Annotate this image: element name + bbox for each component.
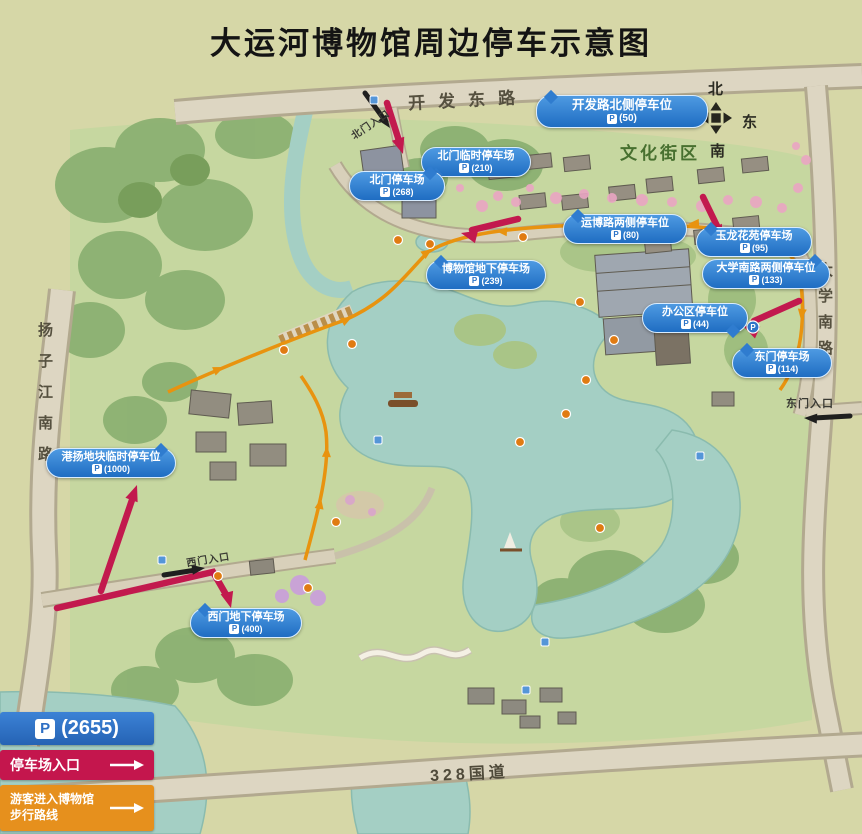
parking-circle-marker: P (747, 321, 759, 333)
parking-icon: P (681, 319, 691, 329)
parking-capacity: (50) (619, 113, 637, 125)
parking-icon: P (92, 464, 102, 474)
legend: P (2655) 停车场入口 游客进入博物馆 步行路线 (0, 712, 154, 834)
compass-north-label: 北 (708, 78, 723, 99)
parking-icon: P (611, 230, 621, 240)
parking-capacity: (400) (241, 624, 262, 634)
parking-icon: P (469, 276, 479, 286)
parking-label-gangyang-block: 港扬地块临时停车位 P(1000) (46, 448, 176, 478)
parking-icon: P (766, 364, 776, 374)
parking-name: 西门地下停车场 (195, 611, 297, 624)
parking-capacity: (114) (778, 364, 799, 374)
parking-icon: P (229, 624, 239, 634)
parking-name: 港扬地块临时停车位 (51, 451, 171, 464)
west-gate-pavilion (249, 559, 274, 575)
parking-label-north-gate: 北门停车场 P(268) (349, 171, 445, 201)
parking-name: 北门停车场 (354, 174, 440, 187)
legend-total-capacity: P (2655) (0, 712, 154, 745)
parking-capacity: (133) (761, 275, 782, 285)
parking-circle-marker-label: P (750, 323, 756, 332)
parking-name: 东门停车场 (737, 351, 827, 364)
parking-icon: P (749, 275, 759, 285)
compass-south-label: 南 (710, 140, 725, 161)
parking-label-office-area: 办公区停车位 P(44) (642, 303, 748, 333)
legend-walk-label-line1: 游客进入博物馆 (10, 792, 94, 806)
parking-label-yunbo-road: 运博路两侧停车位 P(80) (563, 214, 687, 244)
parking-capacity: (268) (392, 187, 413, 197)
parking-label-daxue-south-side: 大学南路两侧停车位 P(133) (702, 259, 830, 289)
parking-label-museum-underground: 博物馆地下停车场 P(239) (426, 260, 546, 290)
parking-capacity: (239) (481, 276, 502, 286)
parking-icon: P (380, 187, 390, 197)
parking-icon: P (740, 243, 750, 253)
parking-icon: P (607, 114, 617, 124)
parking-name: 办公区停车位 (647, 306, 743, 319)
road-label-g328: 328国道 (429, 758, 509, 786)
parking-name: 玉龙花苑停车场 (701, 230, 807, 243)
legend-walk-route: 游客进入博物馆 步行路线 (0, 785, 154, 831)
legend-entrance-label: 停车场入口 (10, 755, 80, 775)
parking-capacity: (44) (693, 319, 709, 329)
parking-capacity: (1000) (104, 464, 130, 474)
parking-name: 大学南路两侧停车位 (707, 262, 825, 275)
parking-name: 北门临时停车场 (426, 150, 526, 163)
parking-capacity: (95) (752, 243, 768, 253)
page-title: 大运河博物馆周边停车示意图 (0, 18, 862, 63)
parking-capacity: (210) (471, 163, 492, 173)
legend-total-value: (2655) (61, 717, 119, 740)
parking-name: 开发路北侧停车位 (541, 98, 703, 113)
parking-capacity: (80) (623, 230, 639, 240)
parking-map-page: P 大运河博物馆周边停车示意图 开发东路 扬子江南路 大学南路 328国道 文化… (0, 0, 862, 834)
parking-label-west-gate-underground: 西门地下停车场 P(400) (190, 608, 302, 638)
compass-east-label: 东 (742, 111, 757, 132)
parking-name: 博物馆地下停车场 (431, 263, 541, 276)
parking-label-kaifa-north-side: 开发路北侧停车位 P(50) (536, 95, 708, 128)
parking-label-yulong-garden: 玉龙花苑停车场 P(95) (696, 227, 812, 257)
east-gate-label: 东门入口 (786, 395, 834, 411)
east-gate-building (712, 392, 734, 406)
legend-walk-label-line2: 步行路线 (10, 808, 58, 822)
parking-name: 运博路两侧停车位 (568, 217, 682, 230)
parking-icon: P (35, 719, 55, 739)
legend-parking-entrance: 停车场入口 (0, 750, 154, 780)
parking-label-east-gate: 东门停车场 P(114) (732, 348, 832, 378)
arrow-right-icon (110, 759, 144, 771)
parking-icon: P (459, 163, 469, 173)
arrow-right-icon (110, 802, 144, 814)
